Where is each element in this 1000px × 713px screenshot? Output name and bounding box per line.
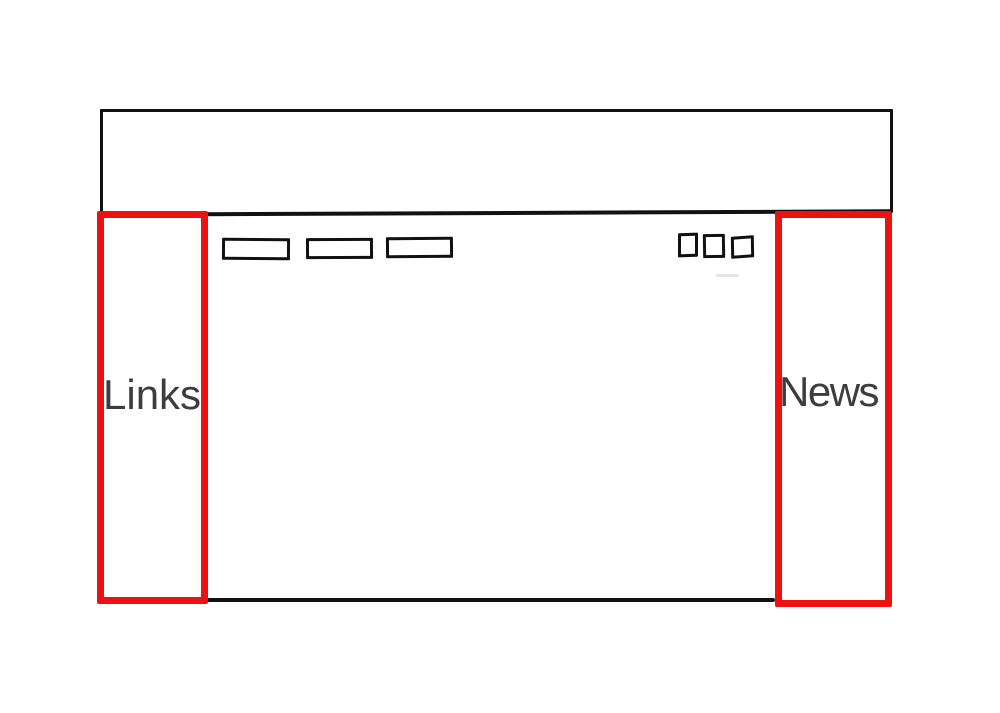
- square-placeholder-1: [678, 233, 698, 258]
- square-placeholder-2: [703, 234, 725, 258]
- header-box: [100, 109, 893, 213]
- nav-button-placeholder-1: [222, 238, 290, 260]
- wireframe-sketch: Links News: [0, 0, 1000, 713]
- pencil-smudge: [716, 274, 739, 277]
- nav-button-placeholder-2: [306, 238, 373, 259]
- nav-button-placeholder-3: [386, 237, 453, 259]
- content-area: [207, 215, 775, 598]
- content-bottom-line: [207, 598, 775, 602]
- links-panel-label: Links: [103, 374, 201, 416]
- news-panel-label: News: [779, 371, 878, 413]
- square-placeholder-3: [731, 235, 754, 259]
